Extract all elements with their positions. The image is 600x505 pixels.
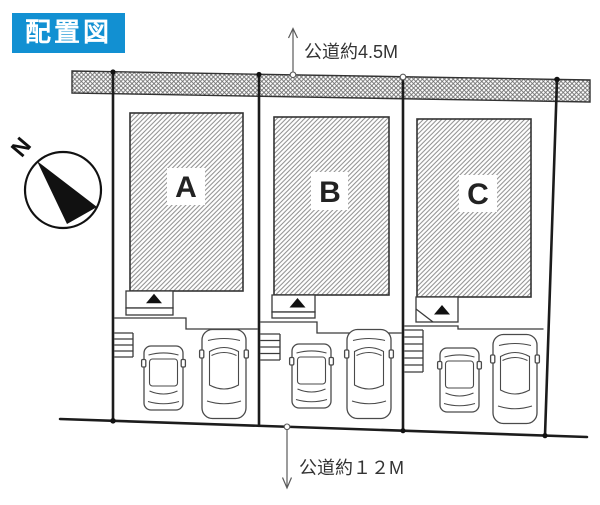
road-top-annotation: 公道約4.5M <box>289 29 399 73</box>
compact-car-icon <box>438 348 482 412</box>
road-bottom-annotation: 公道約１２M <box>283 430 405 488</box>
compact-car-icon <box>290 344 334 408</box>
compass-north-label: N <box>6 132 37 161</box>
lot-c: C <box>404 119 543 424</box>
lot-c-stairs-icon <box>404 330 423 372</box>
sedan-car-icon <box>345 330 394 419</box>
lot-c-parking-line <box>404 326 543 329</box>
lot-a-entrance <box>126 291 173 315</box>
lot-a-parking-line <box>114 318 257 329</box>
site-plan-svg: A B <box>0 0 600 505</box>
lot-b-entrance <box>272 295 315 318</box>
lot-a: A <box>114 113 257 419</box>
road-strip-top <box>72 71 590 102</box>
site-plan: 配置図 <box>0 0 600 505</box>
sedan-car-icon <box>200 330 249 419</box>
lot-a-stairs-icon <box>114 333 133 357</box>
road-label-top: 公道約4.5M <box>304 42 398 62</box>
lot-b-stairs-icon <box>260 334 280 360</box>
boundary-line-right <box>545 80 557 436</box>
lot-c-label: C <box>467 178 489 211</box>
lot-b: B <box>260 117 401 419</box>
road-label-bottom: 公道約１２M <box>299 458 404 478</box>
north-compass-icon: N <box>6 132 101 228</box>
lot-c-entrance <box>416 297 458 322</box>
sedan-car-icon <box>491 335 540 424</box>
compass-needle <box>37 161 97 224</box>
lot-b-label: B <box>319 176 341 209</box>
lot-a-label: A <box>175 171 197 204</box>
compact-car-icon <box>142 346 186 410</box>
